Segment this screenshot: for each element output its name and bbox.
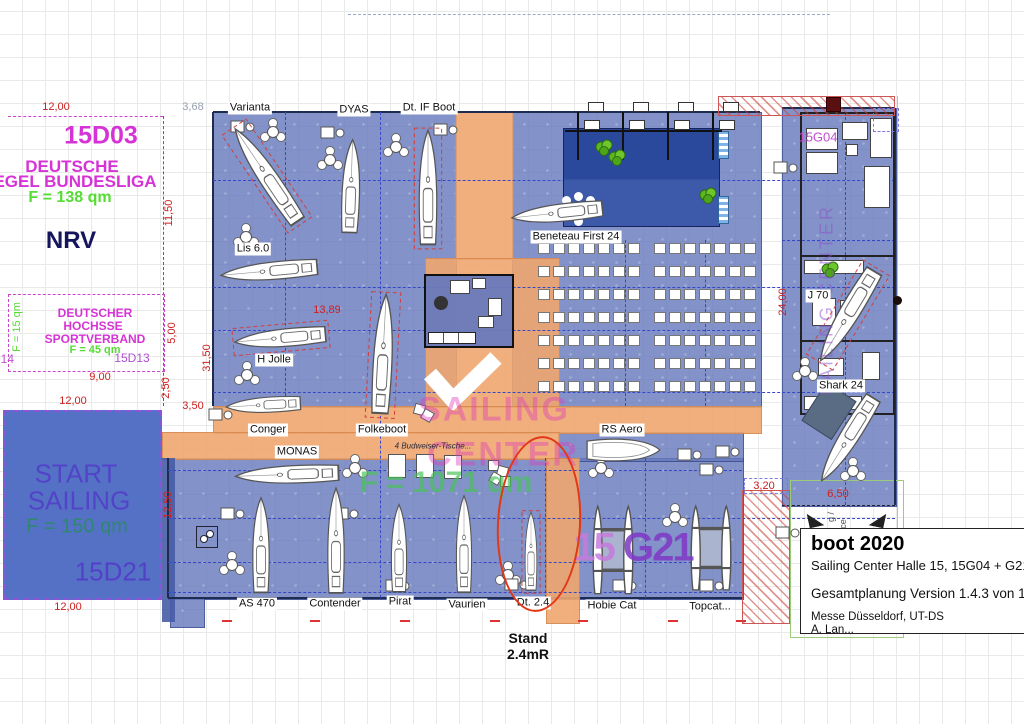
stand-d13-code: 15D13 [114, 351, 149, 365]
dimension-label: 3,50 [182, 400, 203, 412]
audience-chair [654, 381, 666, 392]
audience-chair [583, 335, 595, 346]
audience-chair [729, 289, 741, 300]
audience-chair [628, 335, 640, 346]
title-block-subtitle: Sailing Center Halle 15, 15G04 + G21 [811, 558, 1024, 573]
audience-chair [628, 381, 640, 392]
edge-tick [490, 620, 500, 622]
audience-chair [613, 381, 625, 392]
desk-with-chair [699, 462, 725, 478]
boat-label: Pirat [387, 596, 414, 609]
stand-d14-side-area: F = 15 qm [11, 302, 23, 352]
dimension-label: 5,00 [166, 322, 178, 343]
audience-chair [699, 358, 711, 369]
office-furniture [842, 122, 868, 140]
boat-label: Lis 6.0 [235, 243, 271, 256]
audience-chair [684, 358, 696, 369]
boat-as-470 [247, 495, 275, 597]
boat-label: MONAS [275, 446, 319, 459]
stage-column-stripe-bottom [718, 196, 729, 224]
stand-d03-area: F = 138 qm [28, 189, 111, 207]
audience-chair [568, 289, 580, 300]
reception-chair [478, 316, 494, 328]
audience-chair [538, 266, 550, 277]
audience-chair [613, 243, 625, 254]
stand-d13-area: F = 45 qm [69, 344, 120, 356]
desk-with-chair [775, 525, 801, 541]
boat-label: Hobie Cat [586, 600, 639, 613]
audience-chair [613, 358, 625, 369]
edge-tick [310, 620, 320, 622]
audience-chair [598, 266, 610, 277]
binocular-icon [196, 526, 218, 548]
stand-d03-org: NRV [46, 227, 96, 255]
audience-chair [669, 289, 681, 300]
audience-chair [714, 381, 726, 392]
audience-chair [568, 312, 580, 323]
audience-chair [628, 289, 640, 300]
dimension-label: 12,50 [162, 491, 174, 519]
audience-chair [553, 335, 565, 346]
audience-chair [598, 381, 610, 392]
boat-label: J 70 [806, 290, 831, 303]
title-block-company: Messe Düsseldorf, UT-DS [811, 611, 1024, 623]
audience-chair [654, 243, 666, 254]
audience-chair [583, 358, 595, 369]
stand-g21-code: 15 G21 [573, 526, 692, 571]
audience-chair [699, 243, 711, 254]
audience-chair [744, 358, 756, 369]
audience-chair [744, 381, 756, 392]
dashed-outline-box-top-right [873, 108, 899, 132]
audience-chair [684, 312, 696, 323]
audience-chair [553, 243, 565, 254]
audience-chair [684, 243, 696, 254]
audience-chair [568, 243, 580, 254]
dimension-label: 11,50 [163, 200, 175, 227]
audience-chair [669, 243, 681, 254]
hall-tab-bottom [170, 598, 205, 628]
audience-chair [714, 312, 726, 323]
audience-chair [628, 358, 640, 369]
reception-round-table [434, 296, 448, 310]
boat-label: Topcat... [687, 601, 733, 614]
audience-chair [699, 312, 711, 323]
desk-with-chair [677, 447, 703, 463]
audience-chair [729, 358, 741, 369]
boat-vaurien [451, 493, 477, 597]
dimension-label: 2,50 [160, 377, 172, 398]
reception-workstation [488, 298, 502, 316]
audience-chair [583, 381, 595, 392]
title-block: boot 2020 Sailing Center Halle 15, 15G04… [800, 528, 1024, 634]
hatched-zone-top-block [826, 97, 841, 112]
edge-tick [578, 620, 588, 622]
boat-label: Conger [248, 424, 288, 437]
dimension-label: 6,50 [827, 488, 848, 500]
audience-chair [684, 266, 696, 277]
wall-line [167, 458, 169, 598]
audience-chair [714, 266, 726, 277]
office-wall [800, 255, 895, 257]
boat-dyas [334, 137, 367, 238]
dimension-label: 12,00 [54, 601, 82, 613]
office-furniture [806, 152, 838, 174]
stand-note: Stand 2.4mR [507, 630, 549, 662]
plant-icon [699, 187, 717, 205]
audience-chair [568, 358, 580, 369]
boat-conger [223, 390, 304, 420]
reception-desk [450, 280, 470, 294]
table-with-chairs [381, 132, 411, 162]
boat-label: Vaurien [446, 599, 487, 612]
audience-chair [598, 358, 610, 369]
edge-tick [400, 620, 410, 622]
truss-column [712, 112, 714, 160]
dimension-label: 31,50 [201, 344, 213, 372]
truss-tag [588, 102, 604, 112]
audience-chair [744, 289, 756, 300]
desk-with-chair [220, 506, 246, 522]
audience-chair [669, 312, 681, 323]
boat-topcat [690, 502, 732, 594]
title-block-author: A. Lan... [811, 624, 1024, 636]
audience-chair [654, 289, 666, 300]
stand-note-line2: 2.4mR [507, 646, 549, 662]
audience-chair [598, 289, 610, 300]
construction-line-v [625, 240, 626, 406]
start-sailing-line2: SAILING [28, 486, 131, 517]
audience-chair [613, 266, 625, 277]
audience-chair [684, 335, 696, 346]
dimension-label: 12,00 [42, 101, 70, 113]
audience-chair [669, 358, 681, 369]
audience-chair [654, 312, 666, 323]
audience-chair [699, 335, 711, 346]
stand-g21-code-15: 15 [573, 526, 623, 570]
audience-chair [654, 335, 666, 346]
audience-chair [699, 266, 711, 277]
audience-chair [654, 358, 666, 369]
dimension-label: 3,68 [182, 101, 203, 113]
audience-chair [714, 289, 726, 300]
truss-tag [678, 102, 694, 112]
audience-chair [744, 243, 756, 254]
audience-chair [583, 243, 595, 254]
audience-chair [583, 266, 595, 277]
audience-chair [568, 335, 580, 346]
audience-chair [714, 335, 726, 346]
boat-label: Folkeboot [356, 424, 408, 437]
audience-chair [613, 312, 625, 323]
dimension-label: 24,00 [777, 288, 789, 316]
title-block-version: Gesamtplanung Version 1.4.3 von 1 [811, 586, 1024, 601]
hatched-zone-top [718, 96, 895, 116]
dimension-label: 12,00 [59, 395, 87, 407]
audience-chair [654, 266, 666, 277]
walkway-vertical-top [455, 112, 514, 260]
floor-plan-sheet: START SAILING F = 150 qm 15D21 15D03 DEU… [0, 0, 1024, 724]
audience-chair [729, 243, 741, 254]
stand-note-line1: Stand [507, 630, 549, 646]
truss-beam [565, 130, 722, 132]
audience-chair [669, 335, 681, 346]
office-furniture [846, 144, 858, 156]
truss-tag [584, 120, 600, 130]
audience-chair [538, 312, 550, 323]
stand-d13-name2: HOCHSSE [63, 319, 122, 333]
audience-chair [538, 358, 550, 369]
truss-tag [723, 102, 739, 112]
audience-chair [553, 312, 565, 323]
boat-label: RS Aero [600, 424, 645, 437]
boat-label: Dt. IF Boot [401, 102, 458, 115]
title-block-title: boot 2020 [811, 533, 1024, 556]
stand-d14-side-code: D14 [0, 352, 14, 366]
truss-tag [629, 120, 645, 130]
construction-line-h [782, 505, 895, 506]
plant-icon [608, 149, 626, 167]
audience-chair [684, 289, 696, 300]
boat-label: Contender [307, 598, 362, 611]
wall-marker-dot [893, 296, 902, 305]
boat-label: Shark 24 [817, 380, 865, 393]
stand-g21-code-g21: G21 [623, 526, 693, 570]
reception-desk-2 [472, 278, 486, 289]
audience-chair [598, 243, 610, 254]
reception-room [424, 274, 514, 348]
audience-chair [553, 289, 565, 300]
boat-label: Beneteau First 24 [531, 231, 622, 244]
truss-tag [719, 120, 735, 130]
office-furniture [864, 166, 890, 208]
boat-label: AS 470 [237, 598, 277, 611]
desk-with-chair [715, 444, 741, 460]
audience-chair [669, 381, 681, 392]
audience-chair [729, 335, 741, 346]
office-furniture [862, 352, 880, 380]
boat-rs-aero [582, 436, 662, 464]
sailing-center-note: 4 Budweiser-Tische... [395, 442, 472, 451]
boat-label: Varianta [228, 102, 272, 115]
boat-folkeboot [364, 290, 403, 419]
boat-pirat [386, 502, 412, 596]
audience-chair [538, 243, 550, 254]
audience-chair [729, 312, 741, 323]
truss-tag [674, 120, 690, 130]
audience-chair [714, 243, 726, 254]
construction-line-h [213, 180, 895, 181]
boat-label: H Jolle [255, 354, 293, 367]
audience-chair [669, 266, 681, 277]
edge-tick [668, 620, 678, 622]
audience-chair [598, 312, 610, 323]
audience-chair [628, 243, 640, 254]
audience-chair [729, 266, 741, 277]
audience-chair [628, 312, 640, 323]
audience-chair [538, 289, 550, 300]
audience-chair [628, 266, 640, 277]
stand-d13-name1: DEUTSCHER [58, 306, 133, 320]
fragment-text-1: g / [826, 512, 836, 522]
audience-chair [684, 381, 696, 392]
audience-chair [553, 358, 565, 369]
audience-chair [568, 266, 580, 277]
reception-counter [428, 332, 476, 344]
stage-column-stripe-top [718, 131, 729, 159]
audience-chair [583, 312, 595, 323]
dimension-label: 13,89 [313, 304, 341, 316]
dimension-label: 9,00 [89, 371, 110, 383]
audience-chair [598, 335, 610, 346]
truss-tag [633, 102, 649, 112]
stand-d03-code: 15D03 [64, 122, 138, 151]
truss-column [667, 112, 669, 160]
audience-chair [744, 312, 756, 323]
audience-chair [613, 335, 625, 346]
construction-line-h [8, 116, 163, 117]
audience-chair [744, 335, 756, 346]
construction-line-h [348, 14, 830, 15]
construction-line-h [213, 287, 895, 288]
audience-chair [699, 289, 711, 300]
stand-g04-code: 15G04 [798, 130, 837, 145]
table-with-chairs [217, 550, 247, 580]
boat-dt-if-boot [413, 127, 443, 250]
audience-chair [613, 289, 625, 300]
truss-column [577, 112, 579, 160]
start-sailing-code: 15D21 [75, 557, 152, 588]
audience-chair [744, 266, 756, 277]
edge-tick [222, 620, 232, 622]
audience-chair [729, 381, 741, 392]
audience-chair [714, 358, 726, 369]
audience-chair [583, 289, 595, 300]
audience-chair [553, 266, 565, 277]
boat-contender [322, 485, 350, 598]
start-sailing-area-label: F = 150 qm [26, 516, 128, 539]
boat-label: DYAS [337, 104, 370, 117]
desk-with-chair [773, 160, 799, 176]
audience-chair [699, 381, 711, 392]
sailing-center-line1: SAILING [418, 391, 570, 430]
hatched-zone-right-strip [742, 490, 790, 624]
dimension-label: 3,20 [753, 480, 774, 492]
audience-chair [538, 335, 550, 346]
